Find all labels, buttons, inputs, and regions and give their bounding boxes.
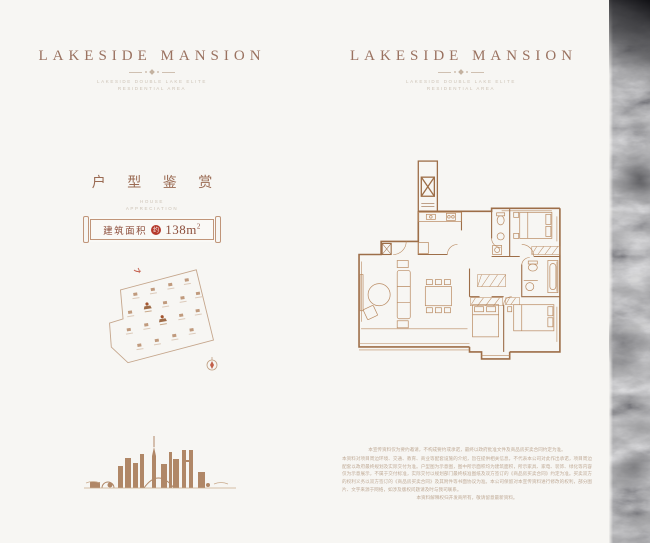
right-brand-header: LAKESIDE MANSION LAKESIDE DOUBLE LAKE EL… <box>350 48 572 92</box>
section-subtitle: HOUSE APPRECIATION <box>38 198 266 212</box>
brand-title: LAKESIDE MANSION <box>38 48 266 65</box>
brand-subtitle-line1: LAKESIDE DOUBLE LAKE ELITE <box>38 78 266 85</box>
site-plan-diagram <box>96 262 234 380</box>
disclaimer-body: 本资料对项目周边环境、交通、教育、商业等配套设施的介绍，旨在提供相关信息，不代表… <box>342 455 592 494</box>
scroll-banner: 建筑面积 约 138m2 <box>90 219 214 240</box>
area-badge-row: 建筑面积 约 138m2 <box>38 219 266 240</box>
disclaimer-top-line: 本宣传资料仅为要约邀请，不构成要约或承诺，最终以政府批准文件及商品房买卖合同约定… <box>342 446 592 454</box>
floor-plan <box>351 146 582 367</box>
section-title: 户 型 鉴 赏 <box>38 172 266 192</box>
section-header: 户 型 鉴 赏 HOUSE APPRECIATION <box>38 172 266 212</box>
compass-icon <box>207 357 217 370</box>
ornament-divider-icon <box>350 70 572 74</box>
city-skyline-illustration <box>82 430 238 494</box>
brand-title: LAKESIDE MANSION <box>350 48 572 65</box>
red-note-mark <box>134 268 141 273</box>
left-brand-header: LAKESIDE MANSION LAKESIDE DOUBLE LAKE EL… <box>38 48 266 92</box>
area-badge-label: 建筑面积 <box>103 223 147 237</box>
brand-subtitle-line2: RESIDENTIAL AREA <box>38 85 266 92</box>
seal-icon: 约 <box>151 225 161 235</box>
brand-subtitle-line1: LAKESIDE DOUBLE LAKE ELITE <box>350 78 572 85</box>
building-icons <box>119 277 209 352</box>
water-texture <box>609 0 650 543</box>
disclaimer-bottom-line: 本资料解释权归开发商所有，敬请留意最新资料。 <box>342 494 592 502</box>
ornament-divider-icon <box>38 70 266 74</box>
brochure-page: LAKESIDE MANSION LAKESIDE DOUBLE LAKE EL… <box>0 0 650 543</box>
brand-subtitle-line2: RESIDENTIAL AREA <box>350 85 572 92</box>
area-badge-value: 138m2 <box>165 222 201 238</box>
disclaimer: 本宣传资料仅为要约邀请，不构成要约或承诺，最终以政府批准文件及商品房买卖合同约定… <box>342 446 592 502</box>
